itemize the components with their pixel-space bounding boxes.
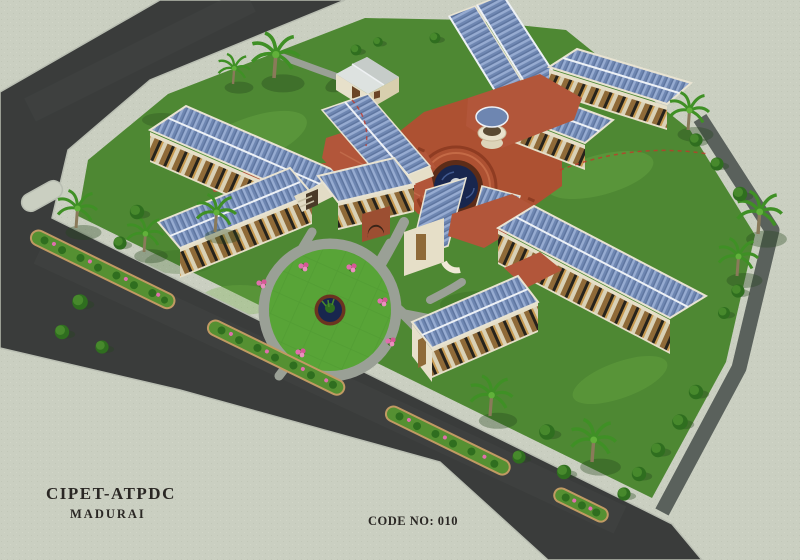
- pond-plant: [325, 303, 335, 313]
- wing-windows: [416, 234, 426, 260]
- drawing-code: CODE NO: 010: [368, 514, 458, 528]
- project-title: CIPET-ATPDC: [46, 484, 176, 503]
- project-location: MADURAI: [70, 507, 146, 521]
- architectural-render-canvas: CIPET-ATPDC MADURAI CODE NO: 010: [0, 0, 800, 560]
- gable-window: [418, 336, 426, 368]
- tower-dome-roof: [476, 107, 508, 127]
